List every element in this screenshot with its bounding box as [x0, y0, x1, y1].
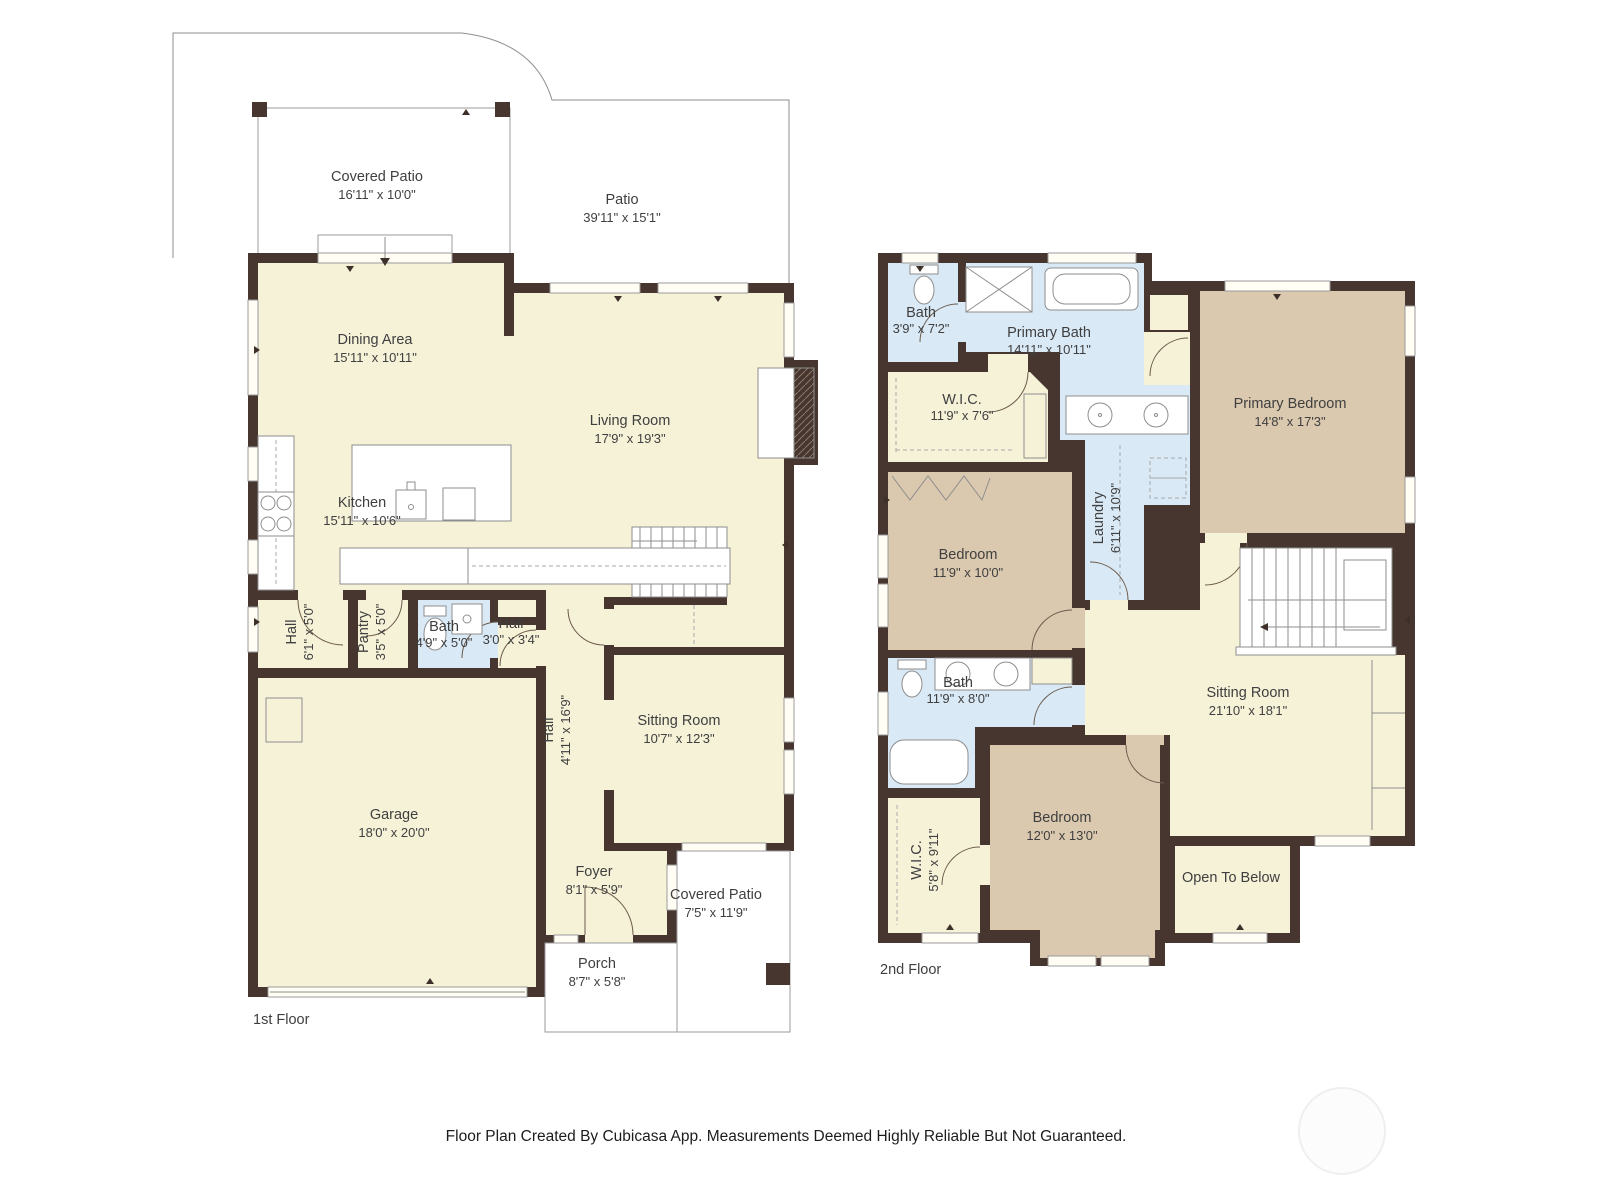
- label-hall-a-dims: 6'1" x 5'0": [301, 603, 316, 660]
- label-living-name: Living Room: [590, 413, 671, 429]
- wall: [604, 647, 794, 655]
- wall: [1144, 281, 1200, 295]
- wall: [1144, 505, 1200, 610]
- label-living-dims: 17'9" x 19'3": [594, 431, 666, 446]
- window: [248, 540, 258, 574]
- bay-opening: [1040, 930, 1155, 940]
- window: [878, 535, 888, 578]
- label-primary-bath-name: Primary Bath: [1007, 325, 1091, 341]
- label-porch-name: Porch: [578, 956, 616, 972]
- label-bedroom-a-dims: 11'9" x 10'0": [933, 565, 1004, 580]
- wall: [1290, 846, 1300, 943]
- watermark-circle: [1299, 1088, 1385, 1174]
- patio-post: [766, 963, 790, 985]
- label-hall-b-dims: 3'0" x 3'4": [483, 632, 540, 647]
- label-hall-c-dims: 4'11" x 16'9": [558, 694, 573, 765]
- fireplace-hearth: [758, 368, 794, 458]
- covered-patio-b-outline: [677, 851, 790, 1032]
- label-foyer-dims: 8'1" x 5'9": [566, 882, 623, 897]
- label-sitting2-dims: 21'10" x 18'1": [1209, 703, 1288, 718]
- label-foyer-name: Foyer: [575, 864, 612, 880]
- wall: [888, 650, 1072, 658]
- stairs-floor2: [1236, 548, 1396, 655]
- label-hall-c-name: Hall: [541, 718, 557, 743]
- window: [784, 698, 794, 742]
- label-sitting2-name: Sitting Room: [1206, 685, 1289, 701]
- room-sitting1: [614, 655, 784, 843]
- label-wic-a-dims: 11'9" x 7'6": [930, 408, 993, 423]
- wall: [888, 462, 1048, 472]
- label-bath-b-dims: 11'9" x 8'0": [926, 691, 989, 706]
- floor2-plan: Bath 3'9" x 7'2" Primary Bath 14'11" x 1…: [878, 253, 1415, 978]
- hall-b-closet: [498, 600, 536, 617]
- patio-post: [252, 102, 267, 117]
- label-porch-dims: 8'7" x 5'8": [569, 974, 626, 989]
- label-dining-dims: 15'11" x 10'11": [333, 350, 417, 365]
- door-gap: [1072, 608, 1085, 648]
- label-hall-a-name: Hall: [284, 620, 300, 645]
- label-wic-a-name: W.I.C.: [942, 392, 981, 408]
- window: [1405, 306, 1415, 356]
- window: [922, 933, 978, 943]
- label-primary-bedroom-dims: 14'8" x 17'3": [1254, 414, 1326, 429]
- door-gap: [1072, 685, 1085, 725]
- window: [878, 692, 888, 735]
- window: [784, 750, 794, 794]
- label-covered-patio-name: Covered Patio: [331, 169, 423, 185]
- window: [248, 300, 258, 395]
- room-dining-kitchen: [258, 263, 512, 590]
- label-pantry-dims: 3'5" x 5'0": [373, 603, 388, 660]
- label-wic-b-dims: 5'8" x 9'11": [926, 828, 941, 891]
- door-gap: [366, 590, 402, 600]
- opening: [604, 700, 614, 790]
- label-bath-b-name: Bath: [943, 675, 973, 691]
- window: [1048, 956, 1096, 966]
- window: [784, 303, 794, 357]
- label-covered-patio-b-dims: 7'5" x 11'9": [684, 905, 747, 920]
- wall: [1160, 735, 1170, 943]
- patio-post: [495, 102, 510, 117]
- floor1-plan: Covered Patio 16'11" x 10'0" Patio 39'11…: [173, 33, 818, 1032]
- label-covered-patio-dims: 16'11" x 10'0": [338, 187, 416, 202]
- wall: [1144, 295, 1150, 332]
- label-bath1-name: Bath: [429, 619, 459, 635]
- wall: [888, 788, 990, 798]
- room-open-below: [1175, 846, 1290, 933]
- fireplace-icon: [794, 368, 814, 458]
- window: [554, 935, 578, 943]
- room-primary-bedroom: [1200, 291, 1405, 533]
- window: [1213, 933, 1267, 943]
- window: [1048, 253, 1136, 263]
- window: [1101, 956, 1149, 966]
- window: [248, 607, 258, 652]
- floor-plan-drawing: Covered Patio 16'11" x 10'0" Patio 39'11…: [0, 0, 1600, 1200]
- window: [1225, 281, 1330, 291]
- floor-plan-page: Covered Patio 16'11" x 10'0" Patio 39'11…: [0, 0, 1600, 1200]
- label-bath-a-name: Bath: [906, 305, 936, 321]
- label-laundry-name: Laundry: [1091, 491, 1107, 544]
- label-primary-bath-dims: 14'11" x 10'11": [1007, 342, 1091, 357]
- floor2-label: 2nd Floor: [880, 962, 941, 978]
- label-sitting1-dims: 10'7" x 12'3": [643, 731, 715, 746]
- label-wic-b-name: W.I.C.: [909, 840, 925, 879]
- label-pantry-name: Pantry: [356, 610, 372, 653]
- wall: [504, 253, 514, 336]
- window: [550, 283, 640, 293]
- label-bedroom-b-name: Bedroom: [1033, 810, 1092, 826]
- wall: [614, 597, 727, 605]
- window: [248, 447, 258, 481]
- vestibule: [1144, 332, 1190, 385]
- wall: [1048, 362, 1060, 472]
- label-sitting1-name: Sitting Room: [637, 713, 720, 729]
- footer-disclaimer: Floor Plan Created By Cubicasa App. Meas…: [446, 1128, 1127, 1145]
- label-primary-bedroom-name: Primary Bedroom: [1234, 396, 1347, 412]
- linen-closet: [1150, 295, 1188, 330]
- label-kitchen-dims: 15'11" x 10'6": [323, 513, 401, 528]
- label-patio-dims: 39'11" x 15'1": [583, 210, 661, 225]
- hall-closet: [1032, 658, 1072, 684]
- label-garage-dims: 18'0" x 20'0": [358, 825, 430, 840]
- label-bedroom-a-name: Bedroom: [939, 547, 998, 563]
- label-bath1-dims: 4'9" x 5'0": [416, 635, 473, 650]
- label-bedroom-b-dims: 12'0" x 13'0": [1026, 828, 1098, 843]
- door-gap: [1126, 735, 1164, 745]
- door-gap: [298, 590, 343, 600]
- wall: [248, 668, 536, 678]
- door-gap: [1090, 600, 1128, 610]
- label-garage-name: Garage: [370, 807, 418, 823]
- door-gap: [1205, 533, 1247, 543]
- window: [682, 843, 766, 851]
- front-door-gap: [585, 935, 633, 943]
- label-kitchen-name: Kitchen: [338, 495, 386, 511]
- wall: [888, 362, 966, 372]
- wall: [980, 745, 990, 935]
- window: [878, 584, 888, 627]
- door-gap: [604, 609, 614, 645]
- label-bath-a-dims: 3'9" x 7'2": [893, 321, 950, 336]
- label-open-below: Open To Below: [1182, 870, 1281, 886]
- wall: [1188, 295, 1200, 332]
- window: [902, 253, 938, 263]
- label-hall-b-name: Hall: [499, 616, 524, 632]
- floor1-label: 1st Floor: [253, 1012, 310, 1028]
- window: [1405, 477, 1415, 523]
- label-patio-name: Patio: [605, 192, 638, 208]
- label-laundry-dims: 6'11" x 10'9": [1108, 482, 1123, 553]
- wall: [408, 600, 418, 668]
- label-dining-name: Dining Area: [338, 332, 414, 348]
- window: [658, 283, 748, 293]
- door-gap: [958, 302, 966, 342]
- upper-hall: [1085, 610, 1240, 655]
- window: [1315, 836, 1370, 846]
- wall: [1170, 836, 1415, 846]
- door-gap: [980, 845, 990, 885]
- label-covered-patio-b-name: Covered Patio: [670, 887, 762, 903]
